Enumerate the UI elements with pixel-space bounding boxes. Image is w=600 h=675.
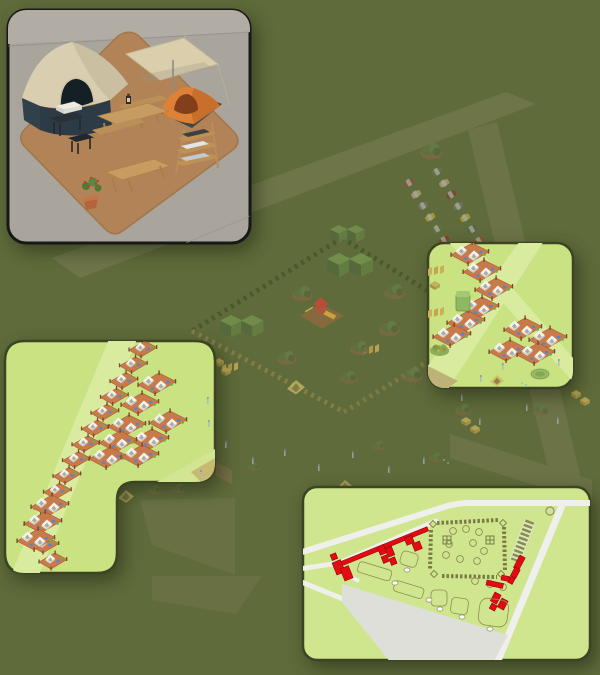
photo-campsite-render <box>5 7 253 246</box>
callout-campsite-detail-left <box>2 338 218 576</box>
site-masterplan-map <box>300 484 593 663</box>
callout-campsite-detail-top-right <box>425 240 576 391</box>
presentation-canvas <box>0 0 600 675</box>
